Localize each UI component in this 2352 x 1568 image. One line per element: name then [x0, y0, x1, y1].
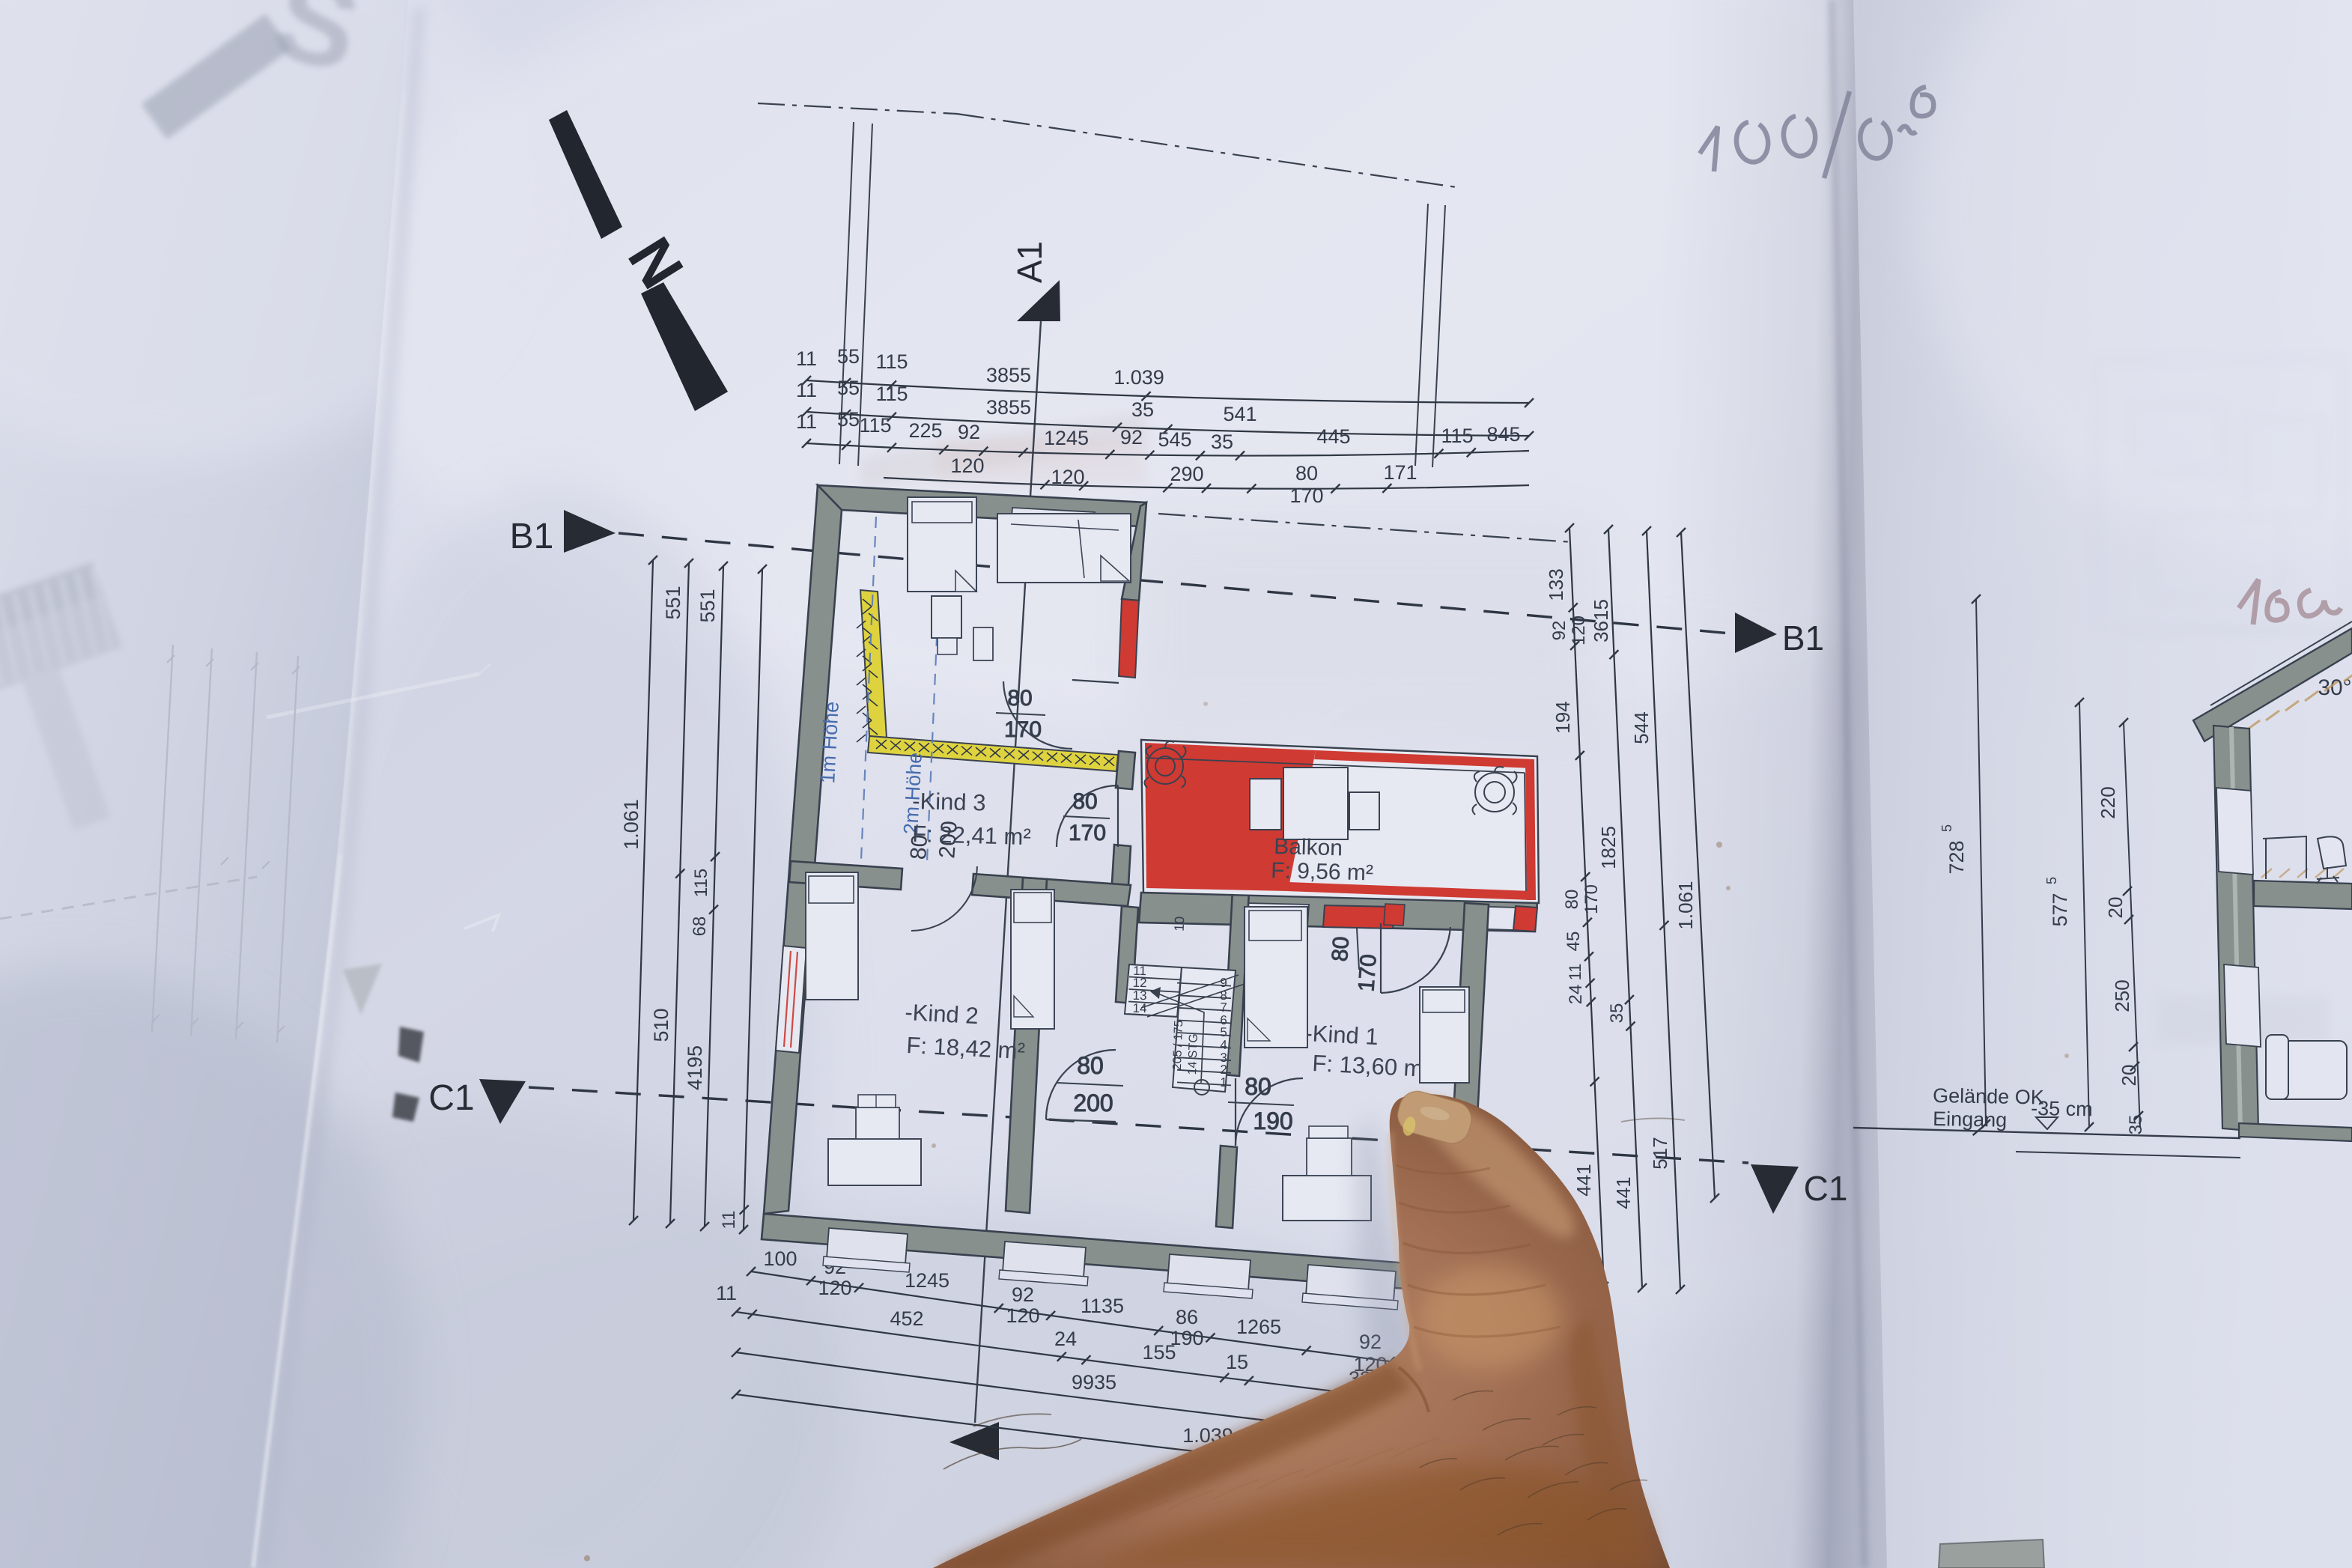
svg-text:1825: 1825	[1597, 826, 1620, 869]
svg-text:545: 545	[1158, 428, 1191, 451]
svg-text:194: 194	[1552, 701, 1574, 733]
svg-text:728: 728	[1945, 840, 1968, 874]
svg-text:170: 170	[1069, 821, 1106, 845]
svg-text:F: 9,56 m²: F: 9,56 m²	[1271, 858, 1374, 886]
svg-text:55: 55	[837, 345, 860, 368]
svg-text:-Kind 2: -Kind 2	[905, 999, 979, 1029]
svg-text:120: 120	[818, 1277, 851, 1299]
svg-text:133: 133	[1545, 568, 1567, 601]
svg-text:80: 80	[1077, 1052, 1104, 1079]
svg-text:120: 120	[1569, 616, 1589, 645]
svg-text:68: 68	[690, 917, 710, 937]
svg-text:115: 115	[691, 869, 711, 897]
svg-text:170: 170	[1354, 953, 1381, 992]
svg-text:3855: 3855	[986, 364, 1031, 386]
svg-text:1.061: 1.061	[1674, 881, 1697, 929]
svg-text:24: 24	[1054, 1328, 1077, 1350]
svg-text:11: 11	[796, 379, 817, 401]
svg-text:20: 20	[2104, 897, 2127, 919]
svg-text:9935: 9935	[1072, 1371, 1116, 1394]
svg-text:B1: B1	[1782, 619, 1824, 657]
svg-text:45: 45	[1564, 932, 1584, 952]
svg-text:10: 10	[1172, 916, 1188, 932]
svg-text:551: 551	[696, 589, 719, 622]
svg-text:170: 170	[1581, 884, 1602, 914]
svg-text:55: 55	[837, 377, 860, 399]
svg-text:B1: B1	[510, 517, 554, 556]
svg-text:92: 92	[1120, 426, 1143, 449]
svg-text:3615: 3615	[1590, 599, 1612, 642]
svg-text:1m Höhe: 1m Höhe	[816, 701, 843, 784]
svg-text:1.061: 1.061	[620, 799, 642, 850]
svg-text:F: 22,41 m²: F: 22,41 m²	[912, 821, 1031, 850]
svg-text:190: 190	[1253, 1107, 1292, 1134]
svg-text:86: 86	[1176, 1306, 1198, 1328]
svg-text:1.039: 1.039	[1113, 366, 1164, 389]
svg-text:1265: 1265	[1236, 1316, 1281, 1338]
svg-text:Eingang: Eingang	[1933, 1107, 2008, 1131]
svg-text:120: 120	[950, 455, 984, 477]
svg-text:35: 35	[1131, 398, 1154, 421]
svg-text:510: 510	[650, 1008, 672, 1042]
svg-text:845: 845	[1486, 423, 1520, 446]
svg-text:115: 115	[875, 383, 908, 405]
svg-text:92: 92	[958, 421, 980, 443]
svg-text:11: 11	[716, 1282, 737, 1304]
svg-text:A1: A1	[1010, 241, 1049, 283]
svg-text:15: 15	[1226, 1351, 1248, 1373]
svg-text:1135: 1135	[1081, 1295, 1124, 1317]
svg-text:171: 171	[1383, 461, 1417, 484]
svg-text:Balkon: Balkon	[1274, 834, 1343, 860]
svg-text:3855: 3855	[986, 396, 1031, 419]
svg-text:220: 220	[2097, 786, 2119, 818]
svg-text:544: 544	[1630, 711, 1653, 744]
svg-text:1: 1	[1220, 1075, 1227, 1090]
svg-text:170: 170	[1004, 717, 1042, 742]
svg-text:100: 100	[763, 1248, 797, 1270]
svg-text:115: 115	[875, 350, 908, 373]
svg-text:577: 577	[2049, 893, 2071, 926]
svg-text:14 STG: 14 STG	[1186, 1033, 1200, 1075]
svg-text:441: 441	[1612, 1176, 1635, 1209]
svg-text:C1: C1	[1804, 1169, 1848, 1208]
svg-text:Gelände OK: Gelände OK	[1933, 1084, 2044, 1109]
svg-text:115: 115	[859, 414, 891, 437]
svg-text:4195: 4195	[684, 1045, 706, 1090]
svg-text:517: 517	[1649, 1137, 1671, 1169]
svg-text:5: 5	[2044, 877, 2059, 884]
svg-text:92: 92	[1549, 621, 1569, 641]
svg-text:80: 80	[1562, 890, 1582, 910]
svg-text:445: 445	[1316, 425, 1350, 448]
svg-text:1245: 1245	[1044, 427, 1089, 449]
svg-text:80: 80	[1007, 686, 1032, 711]
svg-text:35: 35	[1607, 1003, 1627, 1024]
svg-text:35: 35	[2126, 1115, 2146, 1135]
svg-text:120: 120	[1006, 1304, 1039, 1327]
svg-text:80: 80	[1295, 462, 1318, 484]
svg-text:115: 115	[1441, 425, 1473, 447]
svg-text:11: 11	[1566, 964, 1584, 981]
svg-text:170: 170	[1289, 484, 1323, 507]
svg-text:14: 14	[1132, 1001, 1146, 1015]
svg-text:225: 225	[908, 419, 942, 442]
svg-text:35: 35	[1211, 431, 1233, 453]
svg-text:441: 441	[1572, 1164, 1595, 1196]
svg-text:80: 80	[1072, 789, 1097, 814]
svg-text:290: 290	[1170, 463, 1203, 485]
svg-text:205 / 175: 205 / 175	[1171, 1020, 1185, 1070]
svg-text:-Kind 1: -Kind 1	[1304, 1020, 1379, 1050]
svg-text:452: 452	[890, 1307, 923, 1330]
svg-text:155: 155	[1142, 1341, 1176, 1364]
svg-text:541: 541	[1223, 403, 1256, 425]
svg-text:24: 24	[1566, 985, 1586, 1005]
svg-text:C1: C1	[428, 1078, 474, 1118]
svg-text:551: 551	[662, 586, 684, 619]
svg-text:80: 80	[1328, 936, 1354, 963]
svg-text:120: 120	[1051, 466, 1084, 488]
svg-text:-Kind 3: -Kind 3	[912, 788, 986, 816]
svg-text:250: 250	[2111, 979, 2133, 1012]
svg-text:11: 11	[796, 347, 817, 370]
svg-text:11: 11	[796, 410, 817, 433]
svg-text:80: 80	[1245, 1073, 1271, 1100]
svg-text:20: 20	[2118, 1065, 2140, 1087]
svg-text:11: 11	[719, 1211, 739, 1230]
svg-text:92: 92	[1012, 1283, 1034, 1306]
svg-text:200: 200	[1073, 1090, 1113, 1116]
svg-text:1245: 1245	[905, 1269, 949, 1292]
svg-text:55: 55	[837, 408, 860, 431]
svg-text:5: 5	[1939, 824, 1954, 832]
